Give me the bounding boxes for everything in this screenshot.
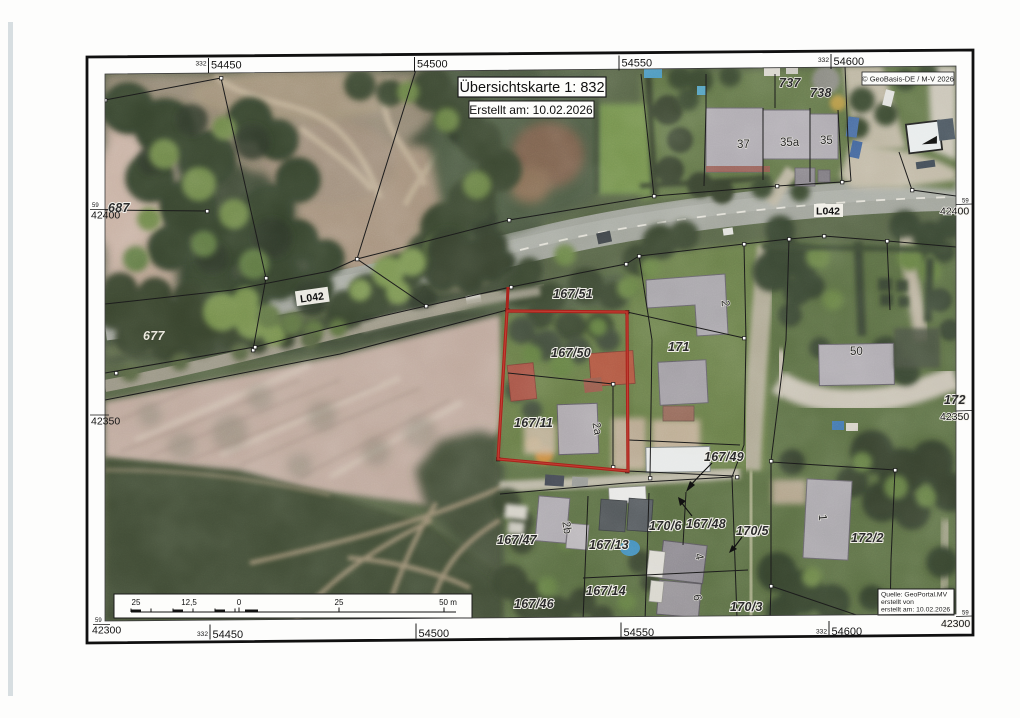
svg-text:54450: 54450	[213, 629, 244, 641]
svg-text:167/13: 167/13	[589, 538, 629, 552]
svg-text:Quelle: GeoPortal.MV: Quelle: GeoPortal.MV	[881, 592, 948, 599]
svg-text:1: 1	[816, 514, 829, 521]
svg-text:54600: 54600	[832, 626, 863, 638]
svg-text:332: 332	[818, 57, 829, 64]
svg-text:42300: 42300	[92, 625, 121, 637]
svg-text:167/49: 167/49	[704, 450, 744, 464]
svg-text:L042: L042	[816, 206, 840, 218]
svg-text:332: 332	[195, 61, 206, 68]
svg-text:737: 737	[779, 76, 802, 90]
svg-text:42400: 42400	[940, 206, 969, 218]
svg-text:50: 50	[850, 346, 863, 358]
svg-text:167/11: 167/11	[514, 416, 553, 430]
svg-text:167/48: 167/48	[686, 517, 726, 531]
svg-text:59: 59	[962, 199, 969, 205]
svg-text:Erstellt am: 10.02.2026: Erstellt am: 10.02.2026	[469, 103, 593, 117]
svg-text:54550: 54550	[622, 57, 653, 69]
svg-text:167/51: 167/51	[553, 287, 593, 301]
svg-text:332: 332	[816, 629, 827, 636]
svg-text:© GeoBasis-DE / M-V 2026: © GeoBasis-DE / M-V 2026	[862, 75, 954, 84]
svg-text:172/2: 172/2	[851, 531, 884, 545]
svg-text:172: 172	[944, 393, 966, 407]
svg-text:170/5: 170/5	[736, 524, 770, 538]
svg-text:54550: 54550	[624, 627, 655, 639]
svg-text:12,5: 12,5	[181, 598, 197, 607]
svg-text:Übersichtskarte 1: 832: Übersichtskarte 1: 832	[459, 78, 604, 96]
svg-text:erstellt von: erstellt von	[881, 599, 914, 606]
svg-text:167/47: 167/47	[497, 533, 538, 547]
svg-text:332: 332	[197, 631, 208, 638]
svg-text:54600: 54600	[834, 56, 865, 68]
svg-text:35: 35	[820, 135, 833, 147]
svg-text:170/6: 170/6	[649, 519, 683, 533]
svg-text:677: 677	[143, 329, 166, 343]
svg-text:171: 171	[668, 340, 690, 354]
svg-text:54450: 54450	[211, 59, 242, 71]
svg-text:35a: 35a	[780, 137, 800, 149]
svg-text:59: 59	[95, 618, 102, 624]
svg-text:170/3: 170/3	[730, 600, 763, 614]
svg-text:167/50: 167/50	[551, 346, 591, 360]
svg-text:37: 37	[737, 139, 750, 151]
svg-text:0: 0	[237, 598, 242, 607]
svg-text:2: 2	[719, 300, 732, 307]
svg-text:54500: 54500	[419, 628, 450, 640]
svg-text:42300: 42300	[941, 618, 970, 630]
svg-text:25: 25	[132, 598, 141, 607]
svg-text:25: 25	[335, 598, 344, 607]
svg-text:42350: 42350	[91, 416, 120, 428]
svg-text:738: 738	[810, 86, 832, 100]
svg-text:50 m: 50 m	[439, 598, 457, 607]
svg-text:59: 59	[962, 611, 969, 617]
svg-text:59: 59	[92, 203, 99, 209]
svg-text:42400: 42400	[91, 210, 120, 222]
svg-text:42350: 42350	[940, 411, 969, 423]
svg-text:2b: 2b	[559, 520, 573, 535]
svg-text:54500: 54500	[417, 58, 448, 70]
svg-text:erstellt am: 10.02.2026: erstellt am: 10.02.2026	[881, 607, 950, 614]
svg-text:167/46: 167/46	[514, 597, 555, 611]
svg-text:167/14: 167/14	[586, 584, 626, 598]
